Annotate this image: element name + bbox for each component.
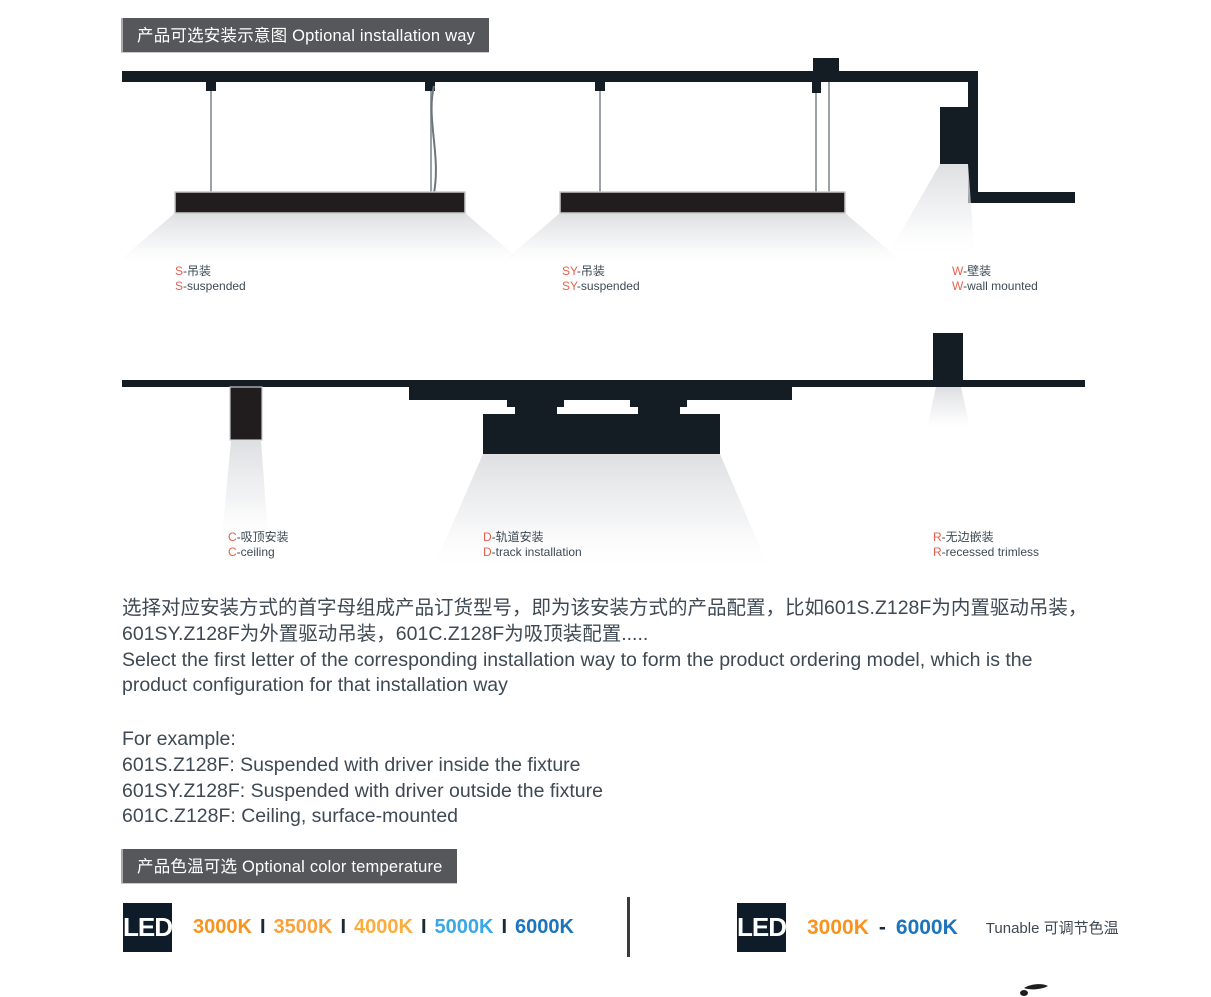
label-w-wall-mounted: W-壁装 W-wall mounted — [952, 264, 1038, 293]
light-beam — [431, 454, 771, 573]
led-badge: LED — [737, 903, 786, 952]
fixed-color-temp-list: 3000K I 3500K I 4000K I 5000K I 6000K — [193, 903, 574, 952]
method-code: R — [933, 530, 942, 544]
light-beam — [113, 213, 527, 266]
method-code: SY — [562, 279, 577, 293]
temp-range-from: 3000K — [807, 916, 869, 940]
method-code: W — [952, 279, 963, 293]
method-code: R — [933, 545, 942, 559]
temp-value: 4000K — [354, 916, 413, 939]
fixture-c-ceiling — [221, 387, 269, 548]
example-intro: For example: — [122, 727, 1100, 753]
temp-value: 3500K — [274, 916, 333, 939]
label-c-ceiling: C-吸顶安装 C-ceiling — [228, 530, 289, 559]
method-code: S — [175, 279, 183, 293]
tunable-note: Tunable 可调节色温 — [986, 917, 1119, 938]
temp-separator: I — [260, 916, 266, 939]
method-zh: -壁装 — [963, 264, 991, 278]
temp-range-to: 6000K — [896, 916, 958, 940]
power-cord — [432, 86, 436, 193]
partial-logo-mark — [1012, 979, 1072, 997]
temp-value: 6000K — [515, 916, 574, 939]
label-r-recessed: R-无边嵌装 R-recessed trimless — [933, 530, 1039, 559]
label-sy-suspended: SY-吊装 SY-suspended — [562, 264, 640, 293]
method-en: -recessed trimless — [942, 545, 1039, 559]
external-driver-box — [813, 58, 839, 71]
track-adapter — [507, 400, 564, 407]
ordering-description-zh: 选择对应安装方式的首字母组成产品订货型号，即为该安装方式的产品配置，比如601S… — [122, 596, 1100, 648]
track-rail — [409, 380, 792, 400]
method-en: -track installation — [492, 545, 582, 559]
method-zh: -吊装 — [183, 264, 211, 278]
ordering-description: 选择对应安装方式的首字母组成产品订货型号，即为该安装方式的产品配置，比如601S… — [122, 596, 1100, 699]
example-item: 601C.Z128F: Ceiling, surface-mounted — [122, 804, 1100, 830]
led-badge: LED — [123, 903, 172, 952]
color-temp-section-header: 产品色温可选 Optional color temperature — [121, 849, 457, 883]
method-en: -suspended — [183, 279, 246, 293]
section-divider — [627, 897, 630, 957]
fixture-w-wall-mounted — [886, 107, 975, 258]
temp-range-dash: - — [879, 916, 886, 940]
tunable-color-temp: 3000K - 6000K Tunable 可调节色温 — [807, 903, 1119, 952]
ordering-description-en: Select the first letter of the correspon… — [122, 648, 1100, 700]
method-code: D — [483, 545, 492, 559]
temp-separator: I — [340, 916, 346, 939]
method-en: -suspended — [577, 279, 640, 293]
method-zh: -轨道安装 — [492, 530, 544, 544]
method-code: C — [228, 530, 237, 544]
example-item: 601S.Z128F: Suspended with driver inside… — [122, 753, 1100, 779]
method-en: -ceiling — [237, 545, 275, 559]
fixture-d-track — [431, 400, 771, 573]
temp-separator: I — [421, 916, 427, 939]
method-zh: -吊装 — [577, 264, 605, 278]
ordering-examples: For example: 601S.Z128F: Suspended with … — [122, 727, 1100, 830]
example-item: 601SY.Z128F: Suspended with driver outsi… — [122, 779, 1100, 805]
light-beam — [498, 213, 907, 266]
label-d-track: D-轨道安装 D-track installation — [483, 530, 582, 559]
fixture-s-suspended — [113, 82, 527, 266]
label-s-suspended: S-吊装 S-suspended — [175, 264, 246, 293]
temp-separator: I — [501, 916, 507, 939]
method-code: SY — [562, 264, 577, 278]
light-beam — [886, 164, 975, 258]
temp-value: 5000K — [435, 916, 494, 939]
track-adapter — [630, 400, 687, 407]
temp-value: 3000K — [193, 916, 252, 939]
fixture-sy-suspended — [498, 58, 907, 266]
method-code: S — [175, 264, 183, 278]
method-zh: -吸顶安装 — [237, 530, 289, 544]
method-code: W — [952, 264, 963, 278]
method-code: C — [228, 545, 237, 559]
catalog-page: 产品可选安装示意图 Optional installation way — [0, 0, 1211, 997]
method-code: D — [483, 530, 492, 544]
method-en: -wall mounted — [963, 279, 1038, 293]
method-zh: -无边嵌装 — [942, 530, 994, 544]
light-beam — [926, 387, 971, 432]
